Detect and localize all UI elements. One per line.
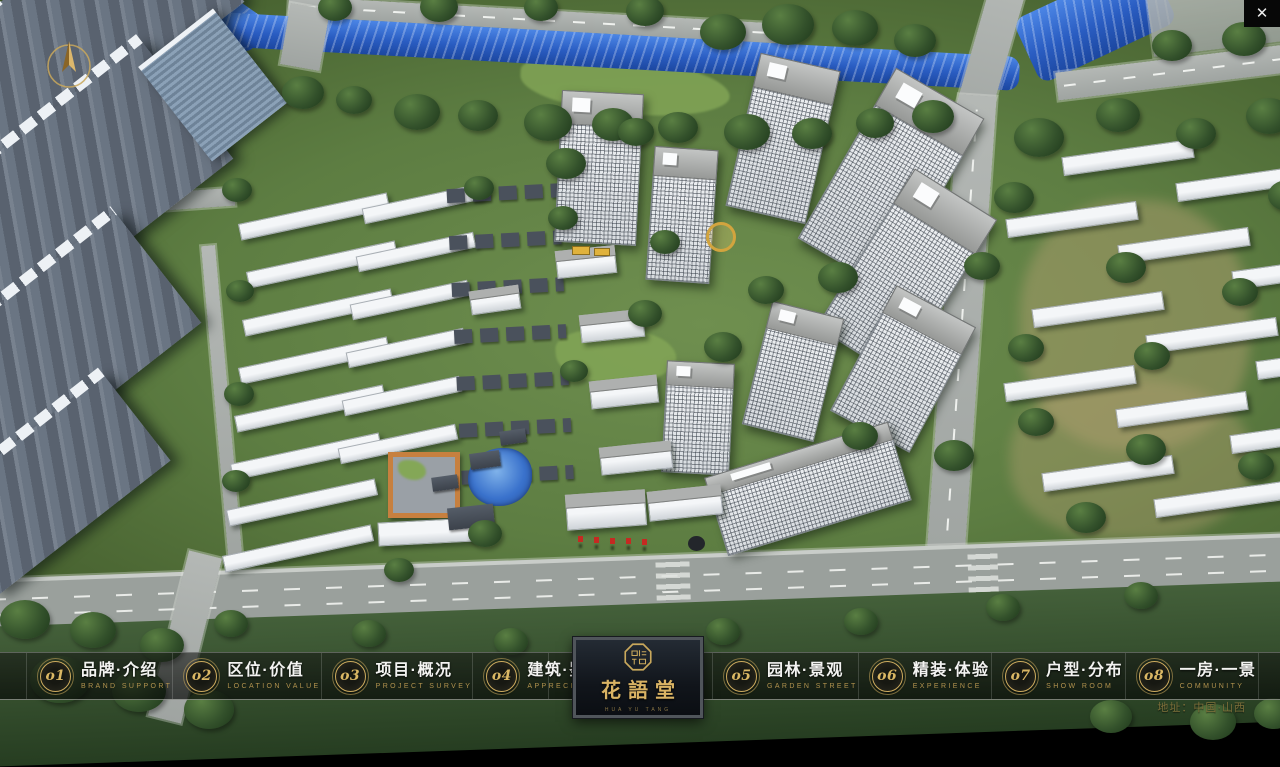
tree-cluster xyxy=(222,178,252,202)
highrise-tower xyxy=(742,301,845,442)
tree-cluster xyxy=(70,612,116,648)
tree-cluster xyxy=(724,114,770,150)
entrance-canopy xyxy=(647,484,724,522)
nav-group-right: o5 园林·景观GARDEN STREET o6 精装·体验EXPERIENCE… xyxy=(712,653,1259,699)
tree-cluster xyxy=(792,118,832,149)
tree-cluster xyxy=(650,230,680,254)
nav-item-floorplan[interactable]: o7 户型·分布SHOW ROOM xyxy=(991,653,1124,699)
nav-title: 项目·概况 xyxy=(376,663,473,679)
shuttle-bus xyxy=(572,246,590,255)
tree-cluster xyxy=(994,182,1034,213)
villa-row xyxy=(454,324,567,344)
tree-cluster xyxy=(214,610,248,637)
project-name: 花語堂 xyxy=(594,674,682,703)
nav-title: 区位·价值 xyxy=(227,663,320,679)
tree-cluster xyxy=(1246,98,1280,134)
tree-cluster xyxy=(222,470,250,492)
tree-cluster xyxy=(560,360,588,382)
fountain xyxy=(688,536,705,551)
nav-number: o6 xyxy=(877,668,897,684)
tree-cluster xyxy=(468,520,502,547)
compass-north-indicator xyxy=(40,34,98,94)
tree-cluster xyxy=(226,280,254,302)
tree-cluster xyxy=(618,118,654,146)
tree-cluster xyxy=(832,10,878,46)
tree-cluster xyxy=(762,4,814,45)
nav-subtitle: SHOW ROOM xyxy=(1046,683,1123,690)
nav-subtitle: COMMUNITY xyxy=(1180,683,1257,690)
tree-cluster xyxy=(1106,252,1146,283)
tree-cluster xyxy=(1254,698,1280,729)
nav-item-location[interactable]: o2 区位·价值LOCATION VALUE xyxy=(172,653,320,699)
tree-cluster xyxy=(1222,22,1266,56)
highrise-slab xyxy=(704,422,912,557)
nav-item-interior[interactable]: o6 精装·体验EXPERIENCE xyxy=(858,653,991,699)
tree-cluster xyxy=(1014,118,1064,157)
nav-item-views[interactable]: o8 一房·一景COMMUNITY xyxy=(1125,653,1258,699)
seal-emblem-icon xyxy=(623,642,653,672)
nav-title: 园林·景观 xyxy=(767,663,858,679)
tree-cluster xyxy=(384,558,414,582)
nav-item-garden[interactable]: o5 园林·景观GARDEN STREET xyxy=(712,653,858,699)
tree-cluster xyxy=(458,100,498,131)
nav-number-badge: o3 xyxy=(335,661,366,692)
nav-subtitle: LOCATION VALUE xyxy=(227,683,320,690)
tree-cluster xyxy=(224,382,254,406)
tree-cluster xyxy=(964,252,1000,280)
nav-subtitle: PROJECT SURVEY xyxy=(376,683,473,690)
lowrise-roof xyxy=(226,478,378,526)
nav-number: o7 xyxy=(1011,668,1031,684)
lowrise-roof xyxy=(1061,139,1194,176)
nav-number: o4 xyxy=(492,668,512,684)
nav-number-badge: o6 xyxy=(872,661,903,692)
tree-cluster xyxy=(912,100,954,133)
nav-number: o5 xyxy=(731,668,751,684)
nav-number: o3 xyxy=(340,668,360,684)
tree-cluster xyxy=(352,620,386,647)
nav-number: o1 xyxy=(45,668,65,684)
lowrise-roof xyxy=(342,376,463,417)
tree-cluster xyxy=(524,104,572,141)
nav-title: 户型·分布 xyxy=(1046,663,1123,679)
shuttle-bus xyxy=(594,248,610,256)
tree-cluster xyxy=(1018,408,1054,436)
crosswalk xyxy=(967,547,999,592)
tree-cluster xyxy=(628,300,662,327)
tree-cluster xyxy=(464,176,494,200)
flag xyxy=(594,537,599,543)
tree-cluster xyxy=(494,628,528,655)
tree-cluster xyxy=(1222,278,1258,306)
tree-cluster xyxy=(1238,452,1274,480)
tree-cluster xyxy=(546,148,586,179)
nav-subtitle: GARDEN STREET xyxy=(767,683,858,690)
flag xyxy=(578,536,583,542)
highrise-tower xyxy=(645,146,718,284)
villa-row xyxy=(449,230,562,250)
project-tagline: HUA YU TANG xyxy=(605,707,671,713)
nav-subtitle: EXPERIENCE xyxy=(913,683,990,690)
nav-number-badge: o8 xyxy=(1139,661,1170,692)
crosswalk xyxy=(655,555,691,600)
tree-cluster xyxy=(1126,434,1166,465)
tree-cluster xyxy=(704,332,742,362)
tree-cluster xyxy=(844,608,878,635)
masterplan-3d-view[interactable] xyxy=(0,0,1280,720)
lowrise-roof xyxy=(1175,165,1280,202)
flag xyxy=(642,539,647,545)
tree-cluster xyxy=(658,112,698,143)
nav-number-badge: o7 xyxy=(1005,661,1036,692)
nav-number: o8 xyxy=(1144,668,1164,684)
nav-title: 一房·一景 xyxy=(1180,663,1257,679)
tree-cluster xyxy=(1134,342,1170,370)
tree-cluster xyxy=(1090,700,1132,733)
project-logo-panel[interactable]: 花語堂 HUA YU TANG xyxy=(573,637,703,718)
villa-row xyxy=(456,371,569,391)
nav-item-project[interactable]: o3 项目·概况PROJECT SURVEY xyxy=(321,653,473,699)
tree-cluster xyxy=(856,108,894,138)
nav-title: 精装·体验 xyxy=(913,663,990,679)
tree-cluster xyxy=(1152,30,1192,61)
nav-number-badge: o5 xyxy=(726,661,757,692)
tree-cluster xyxy=(894,24,936,57)
tree-cluster xyxy=(842,422,878,450)
nav-number-badge: o1 xyxy=(40,661,71,692)
nav-subtitle: BRAND SUPPORT xyxy=(81,683,172,690)
flag xyxy=(610,538,615,544)
tree-cluster xyxy=(986,594,1020,621)
tree-cluster xyxy=(934,440,974,471)
midrise-roof xyxy=(589,375,660,410)
nav-number-badge: o2 xyxy=(186,661,217,692)
tree-cluster xyxy=(1096,98,1140,132)
lowrise-roof xyxy=(1255,343,1280,380)
tree-cluster xyxy=(1176,118,1216,149)
tree-cluster xyxy=(336,86,372,114)
tree-cluster xyxy=(1066,502,1106,533)
nav-group-left: o1 品牌·介绍BRAND SUPPORT o2 区位·价值LOCATION V… xyxy=(26,653,549,699)
lowrise-roof xyxy=(346,328,467,369)
tree-cluster xyxy=(0,600,50,639)
nav-item-brand[interactable]: o1 品牌·介绍BRAND SUPPORT xyxy=(26,653,172,699)
compass-icon xyxy=(40,34,98,94)
tree-cluster xyxy=(818,262,858,293)
nav-title: 品牌·介绍 xyxy=(81,663,172,679)
tree-cluster xyxy=(748,276,784,304)
tree-cluster xyxy=(548,206,578,230)
tree-cluster xyxy=(1008,334,1044,362)
tree-cluster xyxy=(282,76,324,109)
tree-cluster xyxy=(1124,582,1158,609)
tree-cluster xyxy=(706,618,740,645)
entrance-canopy xyxy=(565,489,647,530)
landscape-feature xyxy=(706,222,736,252)
close-button[interactable]: ✕ xyxy=(1244,0,1280,27)
nav-number-badge: o4 xyxy=(486,661,517,692)
flag xyxy=(626,538,631,544)
tree-cluster xyxy=(394,94,440,130)
project-address: 地址：中国·山西 xyxy=(1157,699,1246,715)
nav-number: o2 xyxy=(192,668,212,684)
tree-cluster xyxy=(700,14,746,50)
